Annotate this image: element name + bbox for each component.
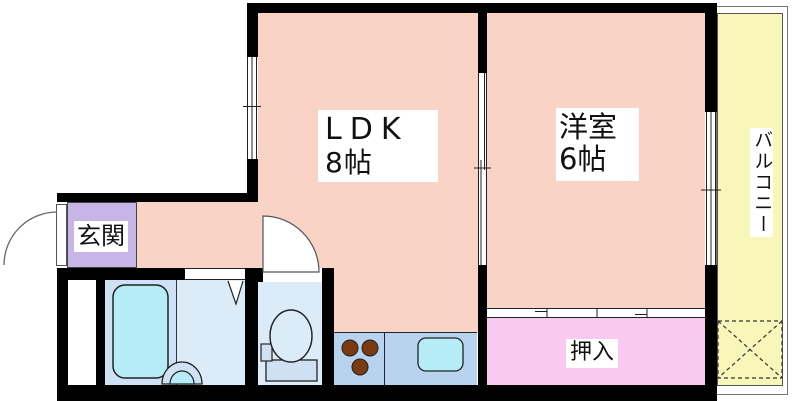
room-label-ldk: LDK 8帖 [318,110,438,182]
room-label-western: 洋室 6帖 [556,108,639,181]
stove-burner-icon [342,340,358,356]
room-label-balcony: バルコニー [750,128,773,237]
western-name: 洋室 [559,111,639,143]
floorplan-canvas: LDK 8帖 洋室 6帖 玄関 押入 バルコニー [0,0,800,401]
ldk-size: 8帖 [325,147,438,178]
washing-machine-area-icon [718,321,782,378]
ldk-name: LDK [325,113,438,147]
western-size: 6帖 [559,143,639,175]
toilet-icon [270,310,312,362]
fixtures-layer [0,0,800,401]
toilet-door-icon [263,216,319,272]
sink-icon [418,338,463,371]
bathtub-icon [113,285,168,378]
toilet-flush-icon [261,344,272,361]
entrance-door-swing-icon [4,212,57,265]
toilet-tank-icon [266,360,317,381]
room-label-entrance: 玄関 [74,221,128,252]
folding-door-icon [228,281,243,304]
room-label-closet: 押入 [566,339,618,368]
window-glazing-lines [243,57,721,318]
stove-burner-icon [362,340,378,356]
stove-burner-icon [352,359,368,375]
